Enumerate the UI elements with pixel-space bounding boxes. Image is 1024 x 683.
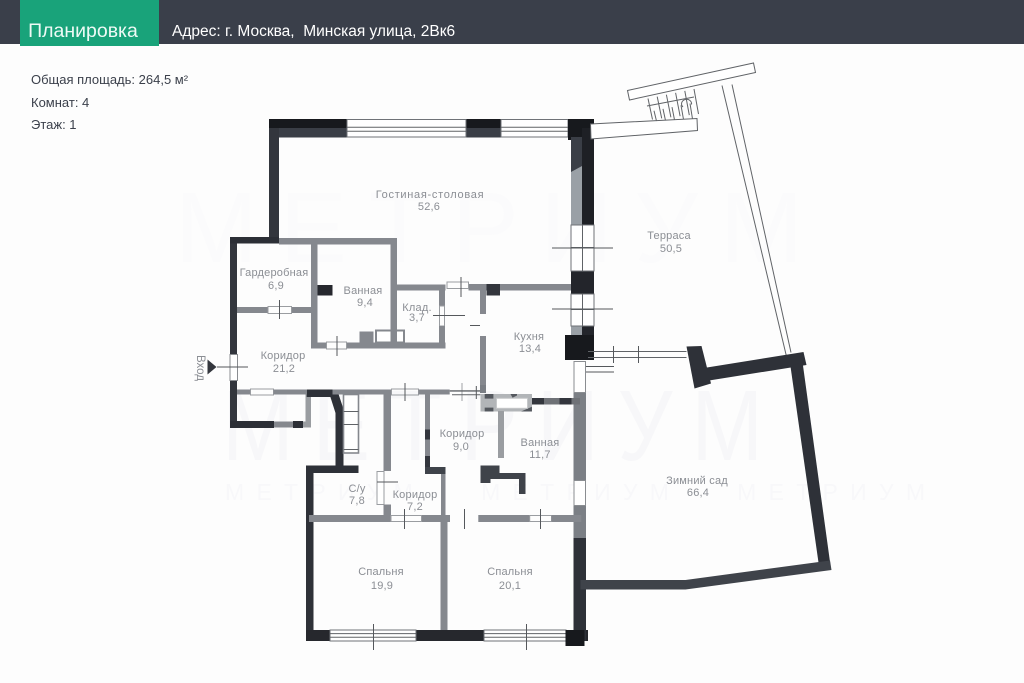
svg-text:52,6: 52,6 (418, 201, 440, 213)
svg-text:9,4: 9,4 (357, 297, 373, 309)
svg-text:Гардеробная: Гардеробная (240, 267, 309, 279)
svg-text:Зимний сад: Зимний сад (666, 475, 728, 487)
svg-text:11,7: 11,7 (529, 449, 550, 461)
svg-text:21,2: 21,2 (273, 363, 295, 375)
svg-text:66,4: 66,4 (687, 487, 709, 499)
svg-text:Планировка: Планировка (28, 20, 138, 42)
svg-text:50,5: 50,5 (660, 243, 682, 255)
svg-text:7,8: 7,8 (349, 495, 365, 507)
svg-text:Спальня: Спальня (358, 566, 404, 578)
svg-text:Гостиная-столовая: Гостиная-столовая (376, 189, 484, 201)
svg-text:Коридор: Коридор (440, 428, 485, 440)
svg-text:Спальня: Спальня (487, 566, 533, 578)
svg-text:Кухня: Кухня (514, 331, 544, 343)
svg-text:Терраса: Терраса (647, 230, 691, 242)
svg-text:6,9: 6,9 (268, 280, 284, 292)
svg-text:19,9: 19,9 (371, 580, 393, 592)
svg-text:Коридор: Коридор (393, 489, 438, 501)
svg-text:Адрес: г. Москва, Минская ули: Адрес: г. Москва, Минская улица, 2Вк6 (172, 23, 455, 40)
svg-text:С/у: С/у (348, 483, 365, 495)
svg-text:Коридор: Коридор (261, 350, 306, 362)
svg-text:Этаж: 1: Этаж: 1 (31, 117, 77, 132)
svg-text:20,1: 20,1 (499, 580, 521, 592)
svg-text:Ванная: Ванная (344, 285, 383, 297)
svg-text:9,0: 9,0 (453, 441, 469, 453)
svg-text:Комнат: 4: Комнат: 4 (31, 95, 89, 110)
svg-text:3,7: 3,7 (409, 312, 425, 324)
svg-text:7,2: 7,2 (407, 501, 423, 513)
svg-text:Ванная: Ванная (521, 437, 560, 449)
svg-text:13,4: 13,4 (519, 343, 541, 355)
svg-text:Общая площадь: 264,5 м²: Общая площадь: 264,5 м² (31, 72, 189, 87)
svg-text:Вход: Вход (194, 355, 206, 381)
